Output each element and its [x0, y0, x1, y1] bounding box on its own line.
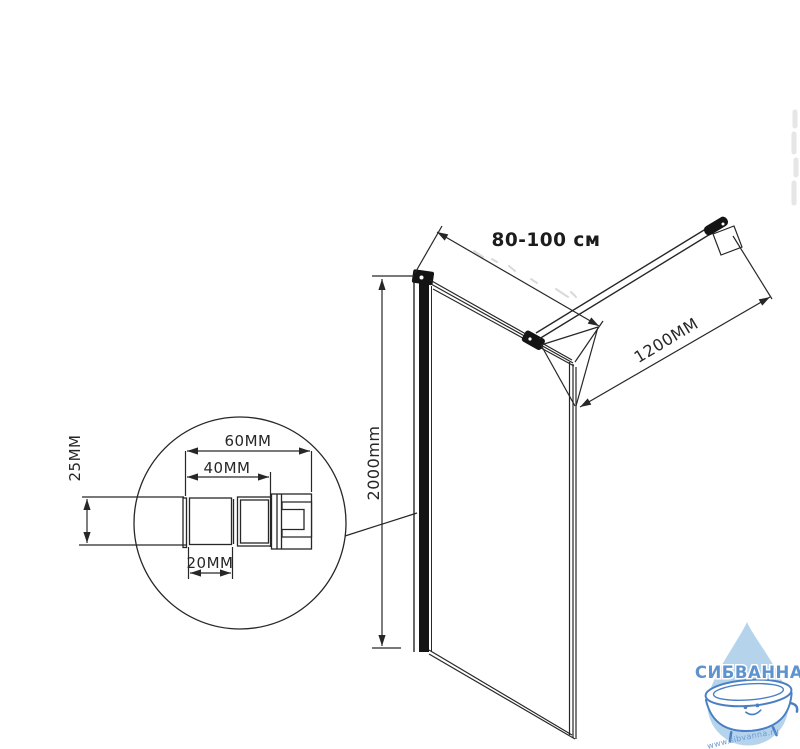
watermark-logo: СИБВАННА www.sibvanna.ru — [695, 622, 800, 749]
wall-profile — [414, 273, 432, 652]
dim-bar-length — [580, 236, 772, 407]
detail-20mm-label: 20MM — [187, 554, 234, 572]
bar-length-label: 1200MM — [631, 314, 702, 367]
detail-25mm-label: 25MM — [66, 435, 84, 482]
detail-40mm-label: 40MM — [204, 459, 251, 477]
dim-width — [415, 226, 603, 406]
right-edge-smudge — [794, 112, 796, 203]
dim-25mm — [79, 497, 186, 545]
width-dimension-label: 80-100 см — [491, 230, 600, 251]
profile-cross-section — [183, 494, 312, 549]
erased-watermark-marks — [474, 251, 576, 297]
wall-bracket — [412, 269, 435, 285]
technical-drawing-svg: 80-100 см 1200MM 2000mm 60MM 40MM 20MM 2… — [0, 0, 800, 749]
bar-wall-bracket — [702, 215, 742, 255]
height-dimension-label: 2000mm — [364, 426, 383, 501]
glass-panel — [429, 280, 576, 739]
shower-screen-technical-drawing: 80-100 см 1200MM 2000mm 60MM 40MM 20MM 2… — [0, 0, 800, 749]
detail-60mm-label: 60MM — [225, 432, 272, 450]
watermark-brand: СИБВАННА — [695, 663, 800, 682]
